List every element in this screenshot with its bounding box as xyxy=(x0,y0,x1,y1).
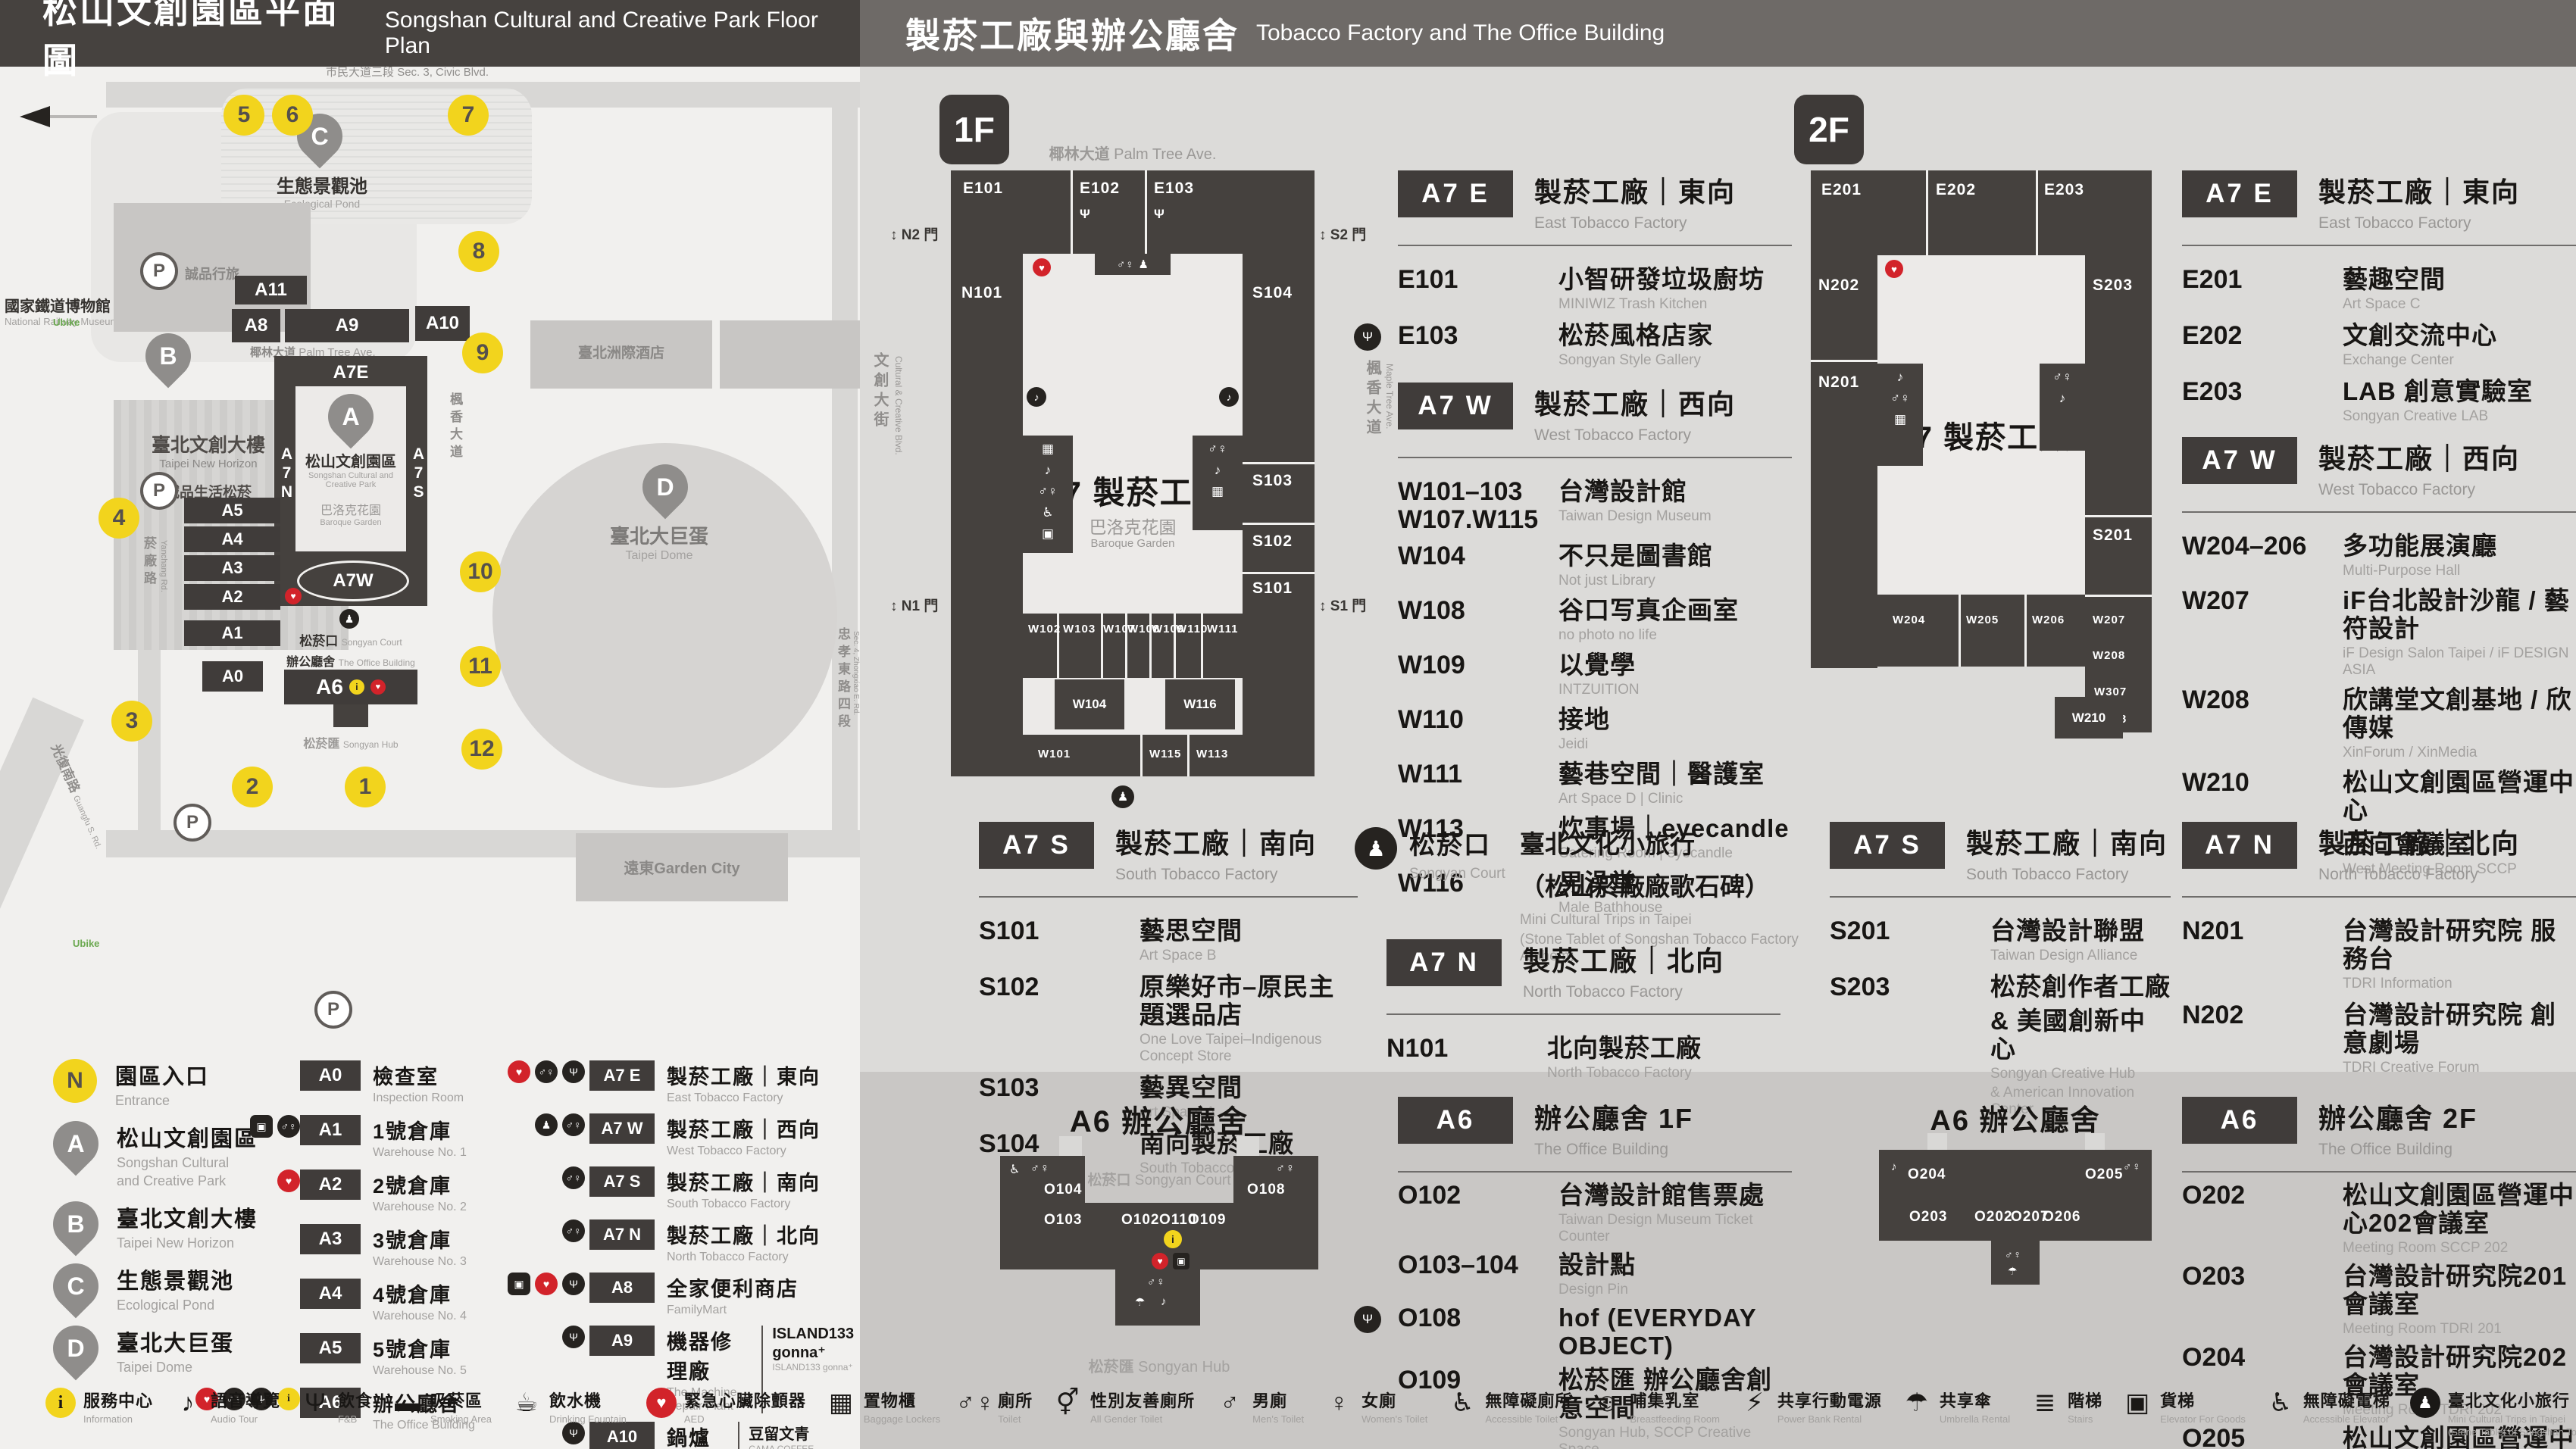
footer-power-bank: ⚡共享行動電源Power Bank Rental xyxy=(1740,1388,1882,1425)
gate-s1: ↕ S1 門 xyxy=(1319,595,1366,615)
footer-womens-toilet: ♀女廁Women's Toilet xyxy=(1324,1388,1427,1425)
cultural-creative-blvd-label: 文創大街 xyxy=(869,352,891,431)
footer-breastfeeding: ☺哺集乳室Breastfeeding Room xyxy=(1592,1388,1720,1425)
a7w-badge: A7 W xyxy=(1398,383,1513,429)
footer-accessible-elevator: ♿無障礙電梯Accessible Elevator xyxy=(2265,1388,2390,1425)
right-header-title-zh: 製菸工廠與辦公廳舍 xyxy=(905,8,1240,58)
room-row: W109以覺學INTZUITION xyxy=(1398,651,1792,698)
legend-row-a7e: ♥ ♂♀ Ψ A7 E 製菸工廠｜東向East Tobacco Factory xyxy=(500,1060,856,1105)
office-building-1f-plan: A6 辦公廳舍 松菸口 Songyan Court O104 O103 O102… xyxy=(1000,1097,1318,1385)
songyan-court-gate-icon: ♟ xyxy=(1111,785,1134,808)
power-bank-icon: ⚡ xyxy=(1740,1388,1770,1418)
a7-north-wing xyxy=(951,254,1023,776)
room-row: W108谷口写真企画室no photo no life xyxy=(1398,597,1792,644)
office-building-map-label: 辦公廳舍 The Office Building xyxy=(265,651,436,670)
aed-icon: ♥ xyxy=(285,588,302,604)
room-label: W111 xyxy=(1207,623,1239,635)
a9-badge: A9 xyxy=(589,1326,655,1356)
womens-toilet-icon: ♀ xyxy=(1324,1388,1354,1418)
amenities-box-west-2f: ♪♂♀▦ xyxy=(1877,364,1923,466)
entrance-icon: N xyxy=(53,1059,97,1103)
room-row: Ψ E103 松菸風格店家Songyan Style Gallery xyxy=(1398,322,1792,369)
yanchang-rd-label: 菸廠路 xyxy=(139,536,158,589)
room-label: E101 xyxy=(963,180,1003,198)
entrance-6: 6 xyxy=(272,95,313,136)
room-label: O103 xyxy=(1044,1212,1082,1229)
room-label: W205 xyxy=(1966,614,1999,626)
section-1f-north: A7 N 製菸工廠｜北向North Tobacco Factory N101北向… xyxy=(1386,939,1780,1082)
room-label: N202 xyxy=(1818,276,1859,295)
room-label: E103 xyxy=(1154,180,1194,198)
a7-east-wing-2f xyxy=(1811,170,2152,255)
parking-icon: P xyxy=(314,991,352,1029)
room-row: O102台灣設計館售票處Taiwan Design Museum Ticket … xyxy=(1398,1182,1792,1245)
a7e-badge: A7 E xyxy=(1398,170,1513,217)
baggage-lockers-icon: ▦ xyxy=(826,1388,856,1418)
room-label: W110 xyxy=(1176,623,1208,635)
room-label: W204 xyxy=(1893,614,1925,626)
fnb-icon: Ψ xyxy=(562,1326,585,1348)
toilet-icon: ♂♀ xyxy=(1030,1162,1050,1176)
zhongxiao-rd-label: 忠孝東路四段 xyxy=(833,627,852,732)
dome-annex-block xyxy=(720,320,860,389)
yanchang-rd-en: Yanchang Rd. xyxy=(159,540,168,592)
footer-lockers: ▦置物櫃Baggage Lockers xyxy=(826,1388,940,1425)
a7s-map-label: A7S xyxy=(409,445,427,502)
aed-icon: ♥ xyxy=(535,1273,558,1295)
pin-d-icon: D xyxy=(44,1316,108,1381)
right-header: 製菸工廠與辦公廳舍 Tobacco Factory and The Office… xyxy=(860,0,2576,67)
room-label: S103 xyxy=(1252,472,1293,490)
footer-aed: ♥緊急心臟除顫器AED xyxy=(646,1388,806,1425)
room-label: O204 xyxy=(1908,1166,1946,1183)
amenities-box-east-2f: ♂♀♪ xyxy=(2040,364,2085,451)
legend-row-park: A 松山文創園區Songshan Culturaland Creative Pa… xyxy=(53,1121,265,1189)
a4-badge: A4 xyxy=(300,1279,361,1309)
gate-n1: ↕ N1 門 xyxy=(890,595,938,615)
entrance-2: 2 xyxy=(232,767,273,807)
footer-mini-trips: ♟ 臺北文化小旅行 （松山菸廠廠歌石碑） Mini Cultural Trips… xyxy=(2410,1388,2576,1438)
room-label: E203 xyxy=(2044,181,2084,199)
a7e-badge: A7 E xyxy=(589,1060,655,1091)
ubike-icon: Ubike xyxy=(53,317,80,328)
section-1f-east: A7 E 製菸工廠｜東向East Tobacco Factory E101 小智… xyxy=(1398,170,1792,369)
palm-tree-ave-label: 椰林大道 Palm Tree Ave. xyxy=(951,142,1315,164)
north-arrow-tail xyxy=(50,115,97,118)
room-w116: W116 xyxy=(1165,679,1235,729)
room-row: E203LAB 創意實驗室Songyan Creative LAB xyxy=(2182,378,2576,425)
room-label: O203 xyxy=(1909,1209,1947,1226)
fnb-icon: Ψ xyxy=(300,1388,330,1418)
toilet-icon: ♂♀ xyxy=(1147,1276,1166,1288)
legend-row-a1: ▣ ♂♀ A1 1號倉庫Warehouse No. 1 xyxy=(250,1115,500,1160)
left-header: 松山文創園區平面圖 Songshan Cultural and Creative… xyxy=(0,0,860,67)
room-row: S201台灣設計聯盟Taiwan Design Alliance xyxy=(1830,917,2171,964)
umbrella-icon: ☂ xyxy=(1135,1295,1146,1309)
accessible-elevator-icon: ♿ xyxy=(2265,1388,2296,1418)
entrance-7: 7 xyxy=(448,95,489,136)
entrance-8: 8 xyxy=(458,231,499,272)
a8-badge: A8 xyxy=(589,1273,655,1303)
building-a1: A1 xyxy=(184,620,280,646)
footer-smoking: ▬吸菸區Smoking Area xyxy=(392,1388,492,1425)
room-row: W104不只是圖書館Not just Library xyxy=(1398,542,1792,589)
amenity-legend-strip: i服務中心Information ♪語音導覽Audio Tour Ψ飲食F&B … xyxy=(45,1388,1508,1438)
building-a3: A3 xyxy=(184,555,280,581)
toilet-icon: ♂♀ xyxy=(1276,1162,1296,1176)
a7-south-wing xyxy=(1243,254,1315,776)
accessible-toilet-icon: ♿ xyxy=(1447,1388,1477,1418)
elevator-icon: ▣ xyxy=(1173,1253,1190,1269)
audio-icon: ♪ xyxy=(1219,387,1239,407)
a7n-badge: A7 N xyxy=(589,1219,655,1250)
floor-2f-badge: 2F xyxy=(1794,95,1864,164)
a7-west-wing-2f xyxy=(1877,595,2085,667)
a7n-badge: A7 N xyxy=(1386,939,1502,986)
garden-city-block: 遠東Garden City xyxy=(576,833,788,901)
aed-icon: ♥ xyxy=(1033,258,1051,276)
dome-label: 臺北大巨蛋 Taipei Dome xyxy=(561,521,758,563)
room-label: W206 xyxy=(2032,614,2065,626)
right-header-title-en: Tobacco Factory and The Office Building xyxy=(1256,20,1665,46)
a7s-badge: A7 S xyxy=(589,1166,655,1197)
room-label: W103 xyxy=(1063,623,1096,635)
room-label: W102 xyxy=(1028,623,1061,635)
room-label: W115 xyxy=(1149,748,1181,760)
toilet-icon: ♂♀ xyxy=(562,1113,585,1136)
toilet-icon: ♂♀ xyxy=(277,1115,300,1138)
section-2f-south: A7 S 製菸工廠｜南向South Tobacco Factory S201台灣… xyxy=(1830,822,2171,1118)
legend-row-pond: C 生態景觀池Ecological Pond xyxy=(53,1263,265,1313)
room-label: S201 xyxy=(2093,526,2133,545)
all-gender-toilet-icon: ⚥ xyxy=(1052,1388,1083,1418)
gate-s2: ↕ S2 門 xyxy=(1319,223,1366,244)
building-a8: A8 xyxy=(232,309,280,342)
maple-ave-en: Maple Tree Ave. xyxy=(1384,364,1395,429)
building-a0: A0 xyxy=(202,661,263,692)
room-row: O202松山文創園區營運中心202會議室Meeting Room SCCP 20… xyxy=(2182,1182,2576,1257)
baroque-garden-courtyard xyxy=(1023,254,1243,614)
intercontinental-block: 臺北洲際酒店 xyxy=(530,320,712,389)
drinking-fountain-icon: ☕ xyxy=(511,1388,542,1418)
room-row: N101北向製菸工廠North Tobacco Factory xyxy=(1386,1035,1780,1082)
room-label: W113 xyxy=(1196,748,1228,760)
room-row: S102原樂好市–原民主題選品店One Love Taipei–Indigeno… xyxy=(979,973,1358,1065)
a7-north-wing-2f xyxy=(1811,255,1877,668)
room-label: O202 xyxy=(1974,1209,2012,1226)
audio-icon: ♪ xyxy=(1027,387,1046,407)
footer-goods-elevator: ▣貨梯Elevator For Goods xyxy=(2122,1388,2246,1425)
cultural-creative-blvd-en: Cultural & Creative Blvd. xyxy=(893,356,904,455)
mens-toilet-icon: ♂ xyxy=(1215,1388,1245,1418)
north-arrow-icon xyxy=(20,106,50,127)
building-a6: A6 i ♥ xyxy=(284,670,417,704)
footer-stairs: ≣階梯Stairs xyxy=(2030,1388,2102,1425)
room-row: W101–103W107.W115 台灣設計館Taiwan Design Mus… xyxy=(1398,478,1792,533)
floor-plan-poster: 松山文創園區平面圖 Songshan Cultural and Creative… xyxy=(0,0,2576,1449)
room-row: N201台灣設計研究院 服務台TDRI Information xyxy=(2182,917,2576,992)
legend-row-new-horizon: B 臺北文創大樓Taipei New Horizon xyxy=(53,1201,265,1251)
smoking-area-icon: ▬ xyxy=(392,1388,423,1418)
a7e-map-label: A7E xyxy=(274,362,427,383)
stairs-icon: ≣ xyxy=(2030,1388,2060,1418)
entrance-3: 3 xyxy=(111,701,152,742)
legend-col2: A0 檢查室Inspection Room ▣ ♂♀ A1 1號倉庫Wareho… xyxy=(250,1060,500,1432)
breastfeeding-room-icon: ☺ xyxy=(1592,1388,1622,1418)
parking-icon: P xyxy=(140,472,178,510)
a6-badge: A6 xyxy=(1398,1097,1513,1144)
building-a2: A2 xyxy=(184,584,280,610)
room-row: W111藝巷空間｜醫護室Art Space D | Clinic xyxy=(1398,760,1792,807)
songyan-court-plan-label: 松菸口 Songyan Court xyxy=(1085,1169,1233,1189)
songyan-court-map-label: 松菸口 Songyan Court xyxy=(288,630,414,649)
footer-water: ☕飲水機Drinking Fountain xyxy=(511,1388,627,1425)
footer-umbrella: ☂共享傘Umbrella Rental xyxy=(1902,1388,2010,1425)
fnb-icon: Ψ xyxy=(1080,207,1091,222)
room-row: E202文創交流中心Exchange Center xyxy=(2182,322,2576,369)
room-label: W101 xyxy=(1038,748,1071,760)
room-row: W208欣講堂文創基地 / 欣傳媒XinForum / XinMedia xyxy=(2182,686,2576,761)
footer-accessible-toilet: ♿無障礙廁所Accessible Toilet xyxy=(1447,1388,1572,1425)
legend-row-a5: A5 5號倉庫Warehouse No. 5 xyxy=(250,1333,500,1378)
building-a11: A11 xyxy=(235,276,307,304)
a1-badge: A1 xyxy=(300,1115,361,1145)
toilet-icon: ♂♀ xyxy=(535,1060,558,1083)
legend-row-entrance: N 園區入口Entrance xyxy=(53,1059,265,1109)
info-icon: i xyxy=(349,679,364,695)
aed-icon: ♥ xyxy=(508,1060,530,1083)
aed-icon: ♥ xyxy=(370,679,386,695)
a7w-badge: A7 W xyxy=(2182,437,2297,484)
section-2f-west: A7 W 製菸工廠｜西向West Tobacco Factory W204–20… xyxy=(2182,437,2576,878)
legend-row-a2: ♥ A2 2號倉庫Warehouse No. 2 xyxy=(250,1170,500,1214)
room-label: O206 xyxy=(2043,1209,2080,1226)
info-icon: i xyxy=(1164,1230,1182,1248)
entrance-1: 1 xyxy=(345,767,386,807)
room-row: W110接地Jeidi xyxy=(1398,706,1792,753)
mini-trips-icon: ♟ xyxy=(1355,827,1397,870)
guangfu-rd-label: 光復南路 Guangfu S. Rd. xyxy=(48,741,111,851)
room-row: E201藝趣空間Art Space C xyxy=(2182,266,2576,313)
pin-c-icon: C xyxy=(44,1254,108,1319)
room-row: O103–104設計點Design Pin xyxy=(1398,1251,1792,1298)
a7n-map-label: A7N xyxy=(277,445,295,502)
a3-badge: A3 xyxy=(300,1224,361,1254)
room-label: S104 xyxy=(1252,284,1293,302)
room-w210: W210 xyxy=(2055,697,2123,739)
goods-elevator-icon: ▣ xyxy=(2122,1388,2152,1418)
gate-n2: ↕ N2 門 xyxy=(890,223,938,244)
building-a5: A5 xyxy=(184,498,280,523)
tobacco-factory-1f-plan: 椰林大道 Palm Tree Ave. E101 E102 E103 Ψ Ψ N… xyxy=(951,170,1315,799)
songyan-hub-plan-label: 松菸匯 Songyan Hub xyxy=(1000,1354,1318,1376)
entrance-12: 12 xyxy=(461,729,502,770)
room-label: O104 xyxy=(1044,1182,1082,1198)
entrance-9: 9 xyxy=(462,333,503,373)
footer-information: i服務中心Information xyxy=(45,1388,153,1425)
a7w-map-label: A7W xyxy=(297,561,409,601)
fnb-icon: Ψ xyxy=(1154,207,1165,222)
a5-badge: A5 xyxy=(300,1333,361,1363)
elevator-icon: ▣ xyxy=(250,1115,273,1138)
elevator-icon: ▣ xyxy=(508,1273,530,1295)
maple-ave-label: 楓香大道 xyxy=(1361,360,1383,439)
information-icon: i xyxy=(45,1388,76,1418)
fnb-icon: Ψ xyxy=(562,1060,585,1083)
a6-badge: A6 xyxy=(2182,1097,2297,1144)
left-header-title-en: Songshan Cultural and Creative Park Floo… xyxy=(385,8,860,59)
room-row: O203台灣設計研究院201會議室Meeting Room TDRI 201 xyxy=(2182,1263,2576,1338)
fnb-icon: Ψ xyxy=(1354,1306,1381,1333)
room-label: S101 xyxy=(1252,579,1293,598)
songyan-court-icon: ♟ xyxy=(339,609,359,629)
civic-blvd-label: 市民大道三段 Sec. 3, Civic Blvd. xyxy=(326,64,489,80)
mini-trips-icon: ♟ xyxy=(2410,1388,2440,1418)
footer-audio-tour: ♪語音導覽Audio Tour xyxy=(173,1388,280,1425)
room-row: E101 小智研發垃圾廚坊MINIWIZ Trash Kitchen xyxy=(1398,266,1792,313)
toilet-icon: ♂♀ xyxy=(2005,1248,2022,1260)
entrance-11: 11 xyxy=(460,646,501,687)
legend-row-dome: D 臺北大巨蛋Taipei Dome xyxy=(53,1326,265,1376)
room-label: W208 xyxy=(2093,649,2125,662)
amenities-box-west: ▦♪ ♂♀♿ ▣ xyxy=(1023,436,1073,553)
entrance-10: 10 xyxy=(460,551,501,592)
fnb-icon: Ψ xyxy=(562,1273,585,1295)
room-label: N101 xyxy=(961,284,1002,302)
legend-row-a3: A3 3號倉庫Warehouse No. 3 xyxy=(250,1224,500,1269)
room-row: S101藝思空間Art Space B xyxy=(979,917,1358,964)
aed-icon: ♥ xyxy=(1152,1253,1168,1269)
a7s-badge: A7 S xyxy=(1830,822,1945,869)
toilet-icon: ♂♀ xyxy=(562,1219,585,1242)
ubike-icon: Ubike xyxy=(73,938,99,949)
mini-trips-icon: ♟ xyxy=(535,1113,558,1136)
legend-row-a0: A0 檢查室Inspection Room xyxy=(250,1060,500,1105)
footer-mens-toilet: ♂男廁Men's Toilet xyxy=(1215,1388,1304,1425)
parking-icon: P xyxy=(140,252,178,290)
room-label: O102 xyxy=(1121,1212,1159,1229)
fnb-icon: Ψ xyxy=(1354,323,1381,351)
aed-icon: ♥ xyxy=(646,1388,677,1418)
room-label: E202 xyxy=(1936,181,1976,199)
songyan-hub-map-label: 松菸匯 Songyan Hub xyxy=(265,733,436,751)
umbrella-icon: ☂ xyxy=(2008,1265,2018,1278)
a6-2f-stem xyxy=(1991,1241,2040,1285)
pin-a-icon: A xyxy=(44,1112,108,1176)
room-label: E102 xyxy=(1080,180,1120,198)
umbrella-rental-icon: ☂ xyxy=(1902,1388,1932,1418)
building-a4: A4 xyxy=(184,526,280,552)
toilet-icon: ♂♀ xyxy=(960,1388,990,1418)
a6-plan-title-2f: A6 辦公廳舍 xyxy=(1879,1097,2152,1138)
legend-row-a7w: ♟ ♂♀ A7 W 製菸工廠｜西向West Tobacco Factory xyxy=(500,1113,856,1158)
footer-toilet: ♂♀廁所Toilet xyxy=(960,1388,1033,1425)
room-label: O205 xyxy=(2085,1166,2123,1183)
park-center-label: 松山文創園區 Songshan Cultural and Creative Pa… xyxy=(295,449,406,527)
a2-badge: A2 xyxy=(300,1170,361,1200)
north-gate-icons: ♂♀♟ xyxy=(1095,254,1171,275)
room-row: W207iF台北設計沙龍 / 藝符設計iF Design Salon Taipe… xyxy=(2182,587,2576,679)
toilet-icon: ♂♀ xyxy=(562,1166,585,1189)
footer-fnb: Ψ飲食F&B xyxy=(300,1388,373,1425)
a7s-badge: A7 S xyxy=(979,822,1094,869)
amenities-box-east: ♂♀♪ ▦ xyxy=(1193,436,1243,530)
aed-icon: ♥ xyxy=(1885,260,1903,278)
parking-icon: P xyxy=(174,804,211,842)
a7n-badge: A7 N xyxy=(2182,822,2297,869)
room-row: N202台灣設計研究院 創意劇場TDRI Creative Forum xyxy=(2182,1001,2576,1076)
audio-icon: ♪ xyxy=(1891,1160,1898,1173)
a7e-badge: A7 E xyxy=(2182,170,2297,217)
building-a10: A10 xyxy=(415,306,470,341)
office-building-2f-plan: A6 辦公廳舍 O204 O205 O203 O202 O207 O206 ♂♀… xyxy=(1879,1097,2152,1339)
legend-row-a8: ▣ ♥ Ψ A8 全家便利商店FamilyMart xyxy=(500,1273,856,1317)
accessible-icon: ♿ xyxy=(1009,1162,1021,1177)
a6-stem xyxy=(333,704,368,727)
entrance-5: 5 xyxy=(224,95,264,136)
entrance-4: 4 xyxy=(98,498,139,539)
legend-row-a4: A4 4號倉庫Warehouse No. 4 xyxy=(250,1279,500,1323)
a7w-badge: A7 W xyxy=(589,1113,655,1144)
aed-icon: ♥ xyxy=(277,1170,300,1192)
room-label: S102 xyxy=(1252,532,1293,551)
room-label: S203 xyxy=(2093,276,2133,295)
a7-east-wing xyxy=(951,170,1315,254)
room-label: E201 xyxy=(1821,181,1862,199)
a6-2f-bar xyxy=(1879,1150,2152,1241)
room-row: W204–206多功能展演廳Multi-Purpose Hall xyxy=(2182,532,2576,579)
footer-all-gender: ⚥性別友善廁所All Gender Toilet xyxy=(1052,1388,1195,1425)
toilet-icon: ♂♀ xyxy=(2123,1160,2142,1173)
legend-row-a7n: ♂♀ A7 N 製菸工廠｜北向North Tobacco Factory xyxy=(500,1219,856,1264)
legend-row-a7s: ♂♀ A7 S 製菸工廠｜南向South Tobacco Factory xyxy=(500,1166,856,1211)
room-label: O108 xyxy=(1247,1182,1285,1198)
section-2f-east: A7 E 製菸工廠｜東向East Tobacco Factory E201藝趣空… xyxy=(2182,170,2576,425)
room-label: O109 xyxy=(1188,1212,1226,1229)
a6-plan-title: A6 辦公廳舍 xyxy=(1000,1097,1318,1141)
room-row: Ψ O108hof (EVERYDAY OBJECT) xyxy=(1398,1304,1792,1360)
tobacco-factory-2f-plan: E201 E202 E203 N202 N201 S203 S201 W207 … xyxy=(1811,170,2152,769)
room-label: W207 xyxy=(2093,614,2125,626)
maple-ave-map-label: 楓香大道 xyxy=(445,392,464,462)
audio-tour-icon: ♪ xyxy=(173,1388,203,1418)
room-label: N201 xyxy=(1818,373,1859,392)
room-w104: W104 xyxy=(1055,679,1124,729)
a0-badge: A0 xyxy=(300,1060,361,1091)
legend-markers: N 園區入口Entrance A 松山文創園區Songshan Cultural… xyxy=(53,1059,265,1376)
building-a9: A9 xyxy=(285,309,409,342)
pin-b-icon: B xyxy=(44,1192,108,1257)
zhongxiao-rd-en: Sec. 4, Zhongxiao E. Rd. xyxy=(852,631,860,715)
audio-icon: ♪ xyxy=(1161,1295,1168,1308)
section-2f-north: A7 N 製菸工廠｜北向North Tobacco Factory N201台灣… xyxy=(2182,822,2576,1076)
